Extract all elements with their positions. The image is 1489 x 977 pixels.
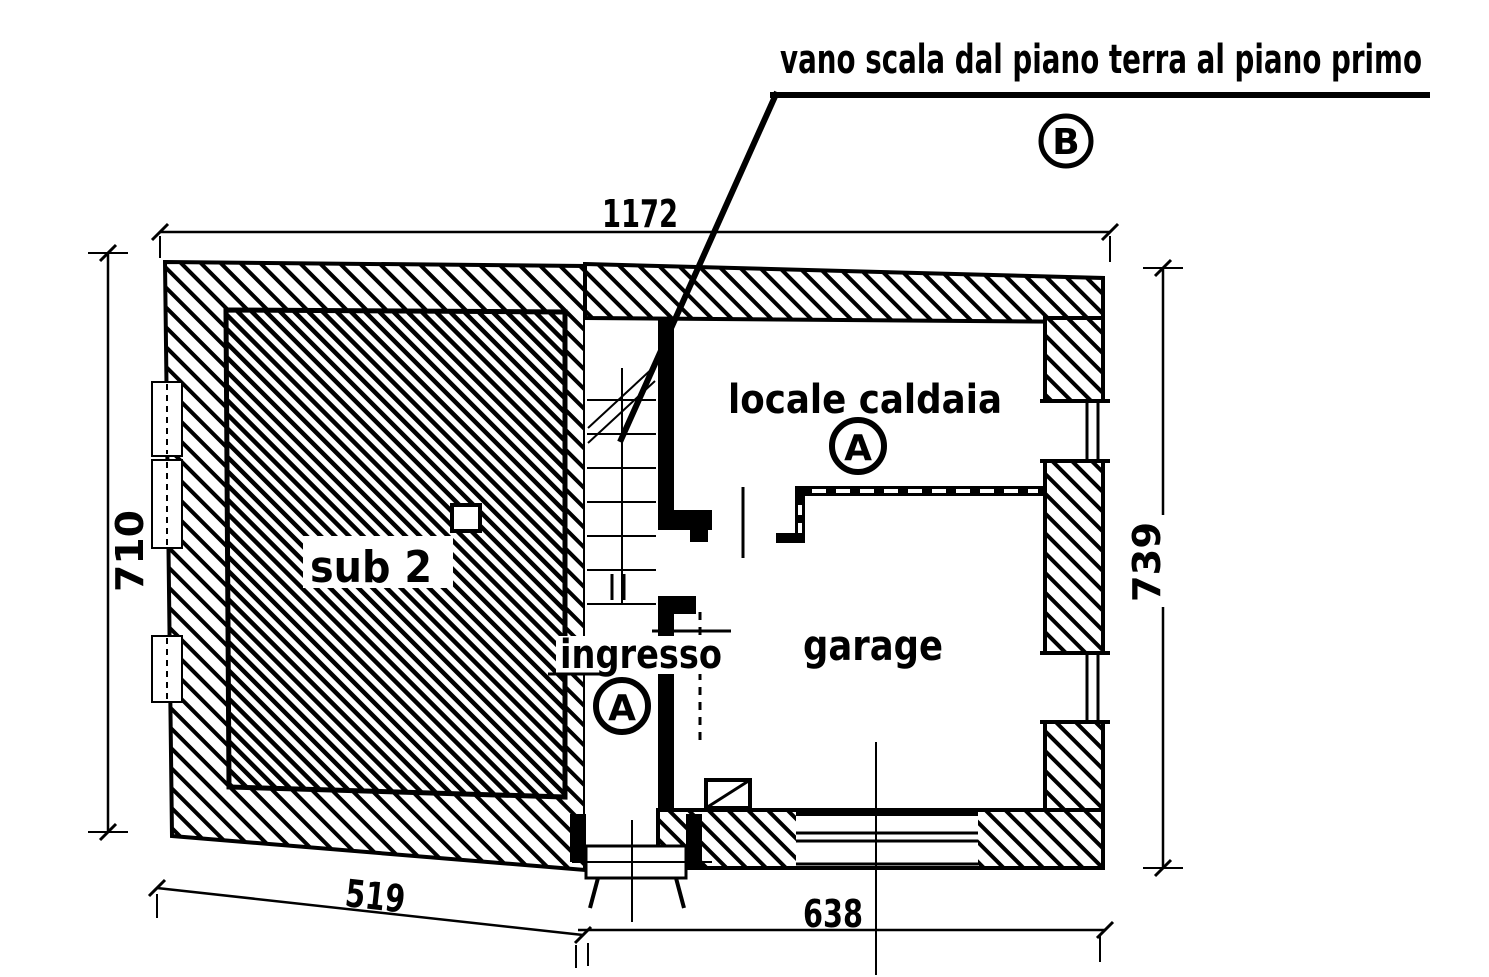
left-wall-openings — [152, 382, 182, 702]
section-marker-a-caldaia-label: A — [844, 428, 872, 469]
dim-bottom-right-width: 638 — [803, 892, 863, 936]
floor-plan-drawing: vano scala dal piano terra al piano prim… — [0, 0, 1489, 977]
dim-left-height: 710 — [108, 510, 152, 592]
section-marker-a-ingresso-label: A — [608, 688, 636, 729]
dim-top-width: 1172 — [602, 192, 678, 236]
dim-right-height: 739 — [1125, 522, 1169, 602]
sub2-pillar — [452, 505, 480, 531]
garage-corner-door-swing — [706, 780, 750, 808]
room-label-sub2: sub 2 — [310, 542, 432, 593]
right-wall-window-lower — [1040, 651, 1110, 724]
floor-plan-page: vano scala dal piano terra al piano prim… — [0, 0, 1489, 977]
right-wall-window-upper — [1040, 399, 1110, 463]
room-label-garage: garage — [803, 621, 943, 670]
callout-text: vano scala dal piano terra al piano prim… — [780, 37, 1422, 83]
room-label-locale-caldaia: locale caldaia — [728, 377, 1002, 423]
dim-bottom-left-width: 519 — [343, 871, 407, 921]
room-label-ingresso: ingresso — [560, 632, 722, 678]
section-marker-b-label: B — [1052, 122, 1079, 163]
